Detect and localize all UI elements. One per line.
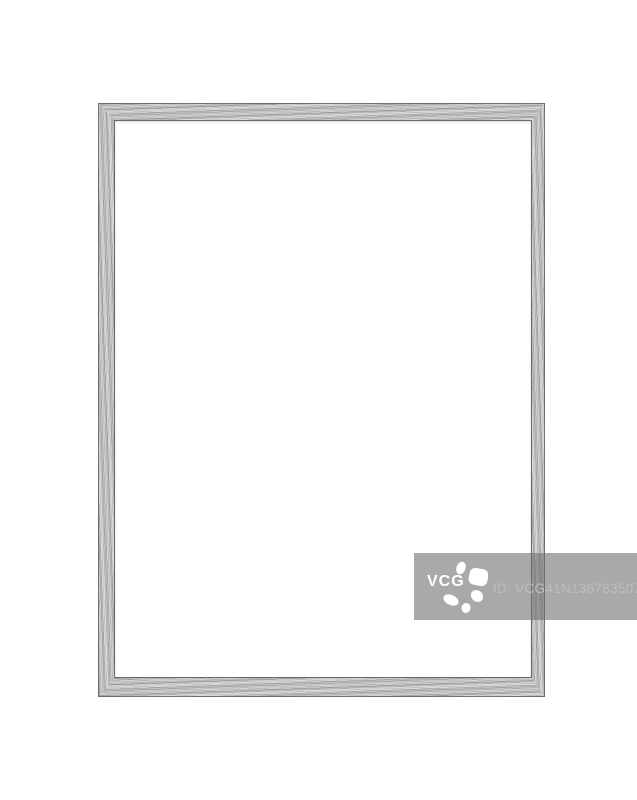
vcg-flower-icon xyxy=(443,561,488,613)
watermark-bar: VCG ID: VCG41N1367835078 xyxy=(414,553,637,620)
watermark-id-text: ID: VCG41N1367835078 xyxy=(493,582,637,596)
frame-left-rail xyxy=(98,103,114,697)
photo-canvas: VCG ID: VCG41N1367835078 xyxy=(0,0,637,800)
frame-bottom-rail xyxy=(98,678,545,697)
frame-top-rail xyxy=(98,103,545,120)
